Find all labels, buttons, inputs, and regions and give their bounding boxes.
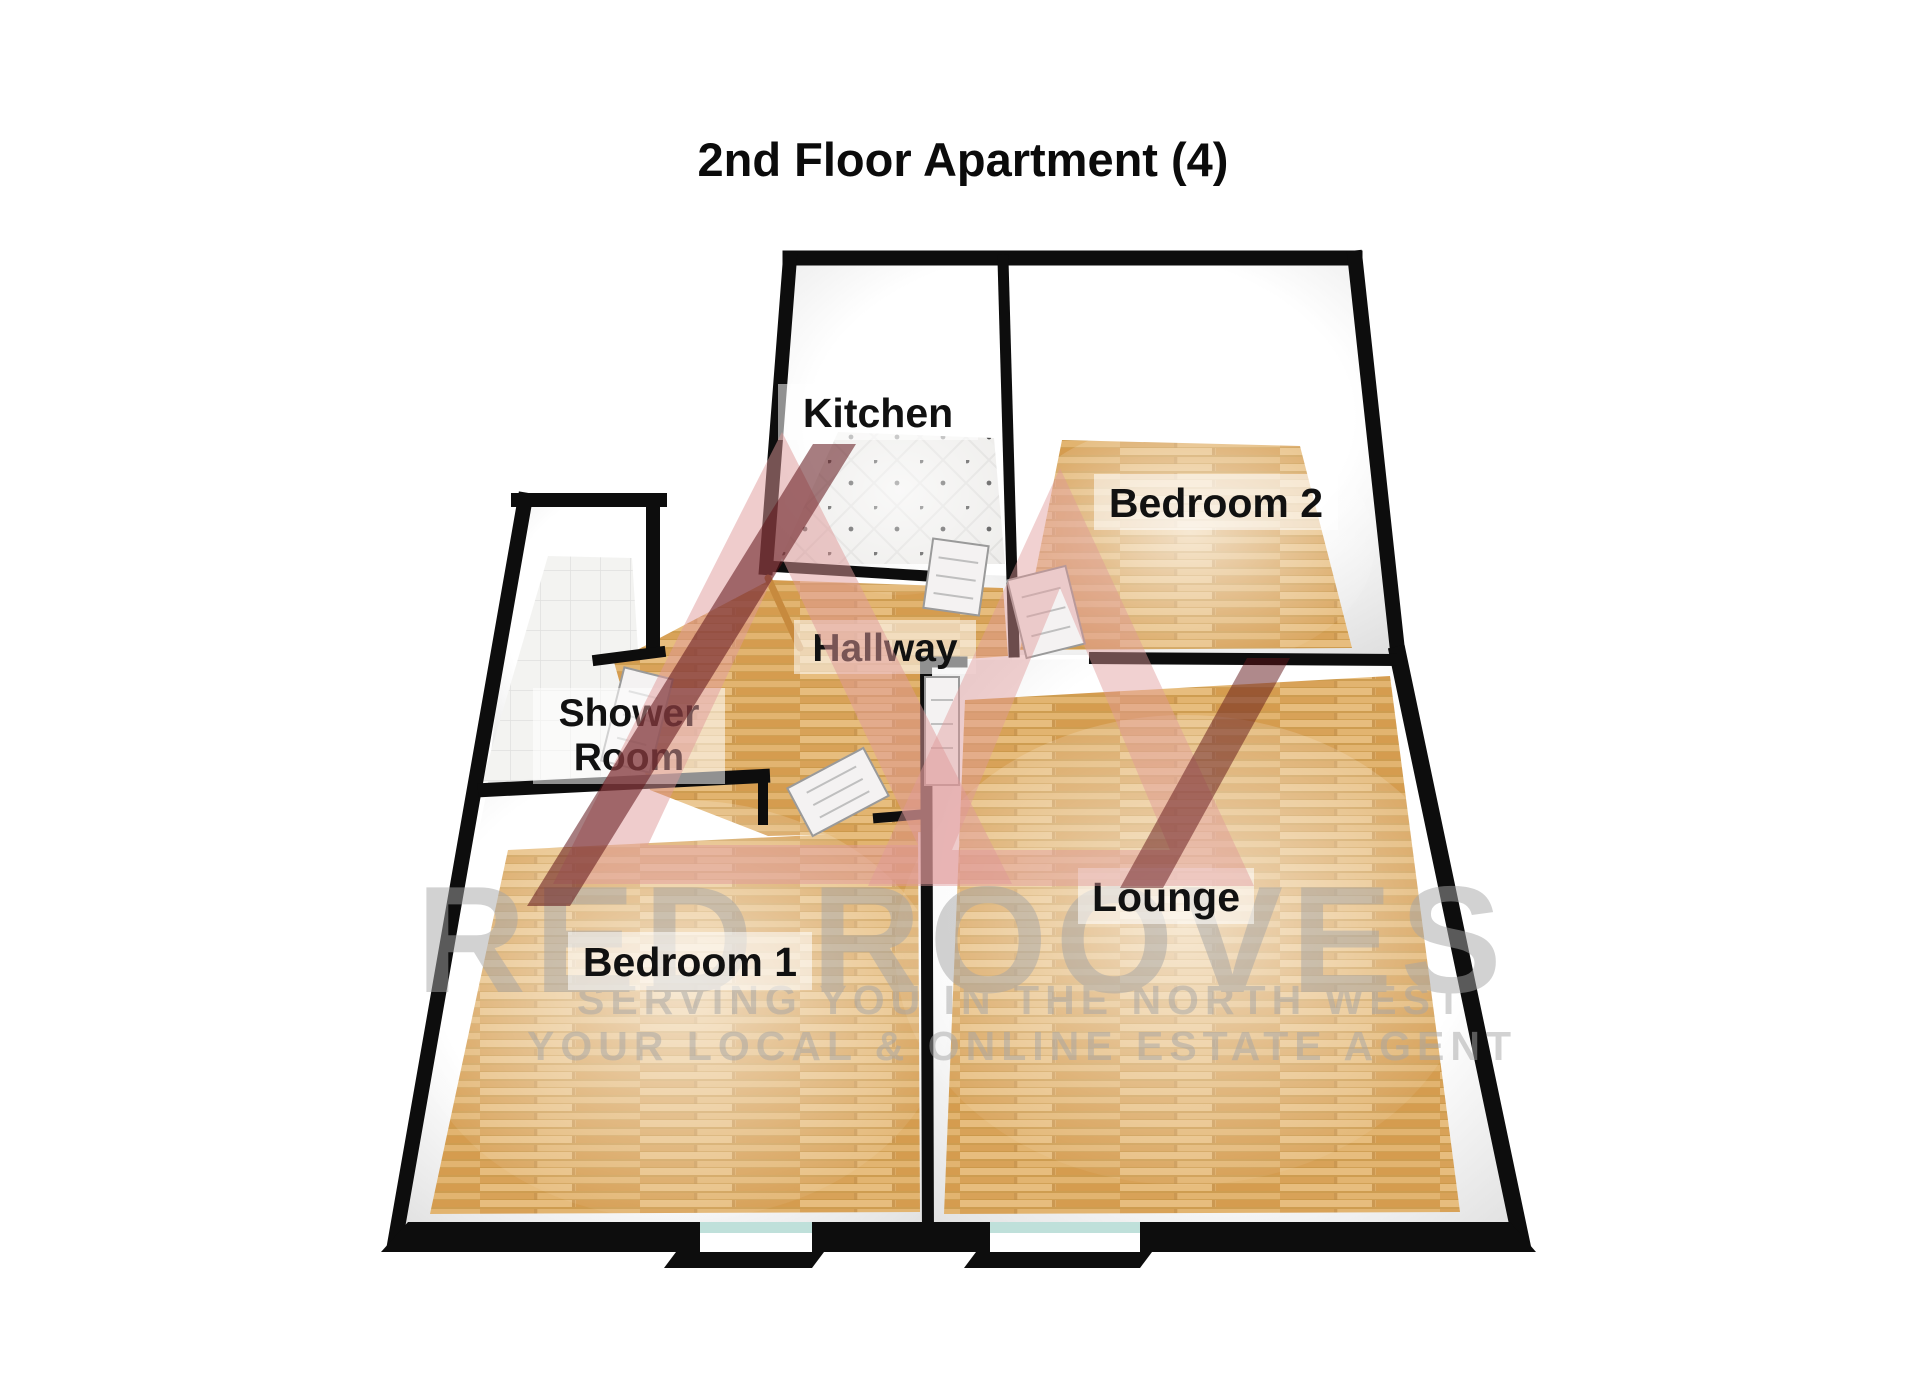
bedroom2-label-text: Bedroom 2 [1109,480,1323,526]
watermark-tagline2: YOUR LOCAL & ONLINE ESTATE AGENT [527,1023,1517,1069]
window-sill [964,1252,1152,1268]
kitchen-label: Kitchen [778,384,978,440]
page-title: 2nd Floor Apartment (4) [698,133,1229,186]
bedroom1-label: Bedroom 1 [568,932,812,990]
kitchen-label-text: Kitchen [803,390,953,436]
kitchen-door [923,538,988,615]
window-lounge [964,1222,1152,1268]
bedroom2-label: Bedroom 2 [1094,474,1338,530]
floorplan-canvas: 2nd Floor Apartment (4) [0,0,1920,1396]
wall-bottom [381,1222,1536,1252]
bottom-wall [381,1222,1536,1268]
window-glass [700,1222,812,1233]
floorplan-page: 2nd Floor Apartment (4) [0,0,1920,1396]
bedroom1-label-text: Bedroom 1 [583,939,797,985]
window-glass [990,1222,1140,1233]
window-sill [664,1252,824,1268]
